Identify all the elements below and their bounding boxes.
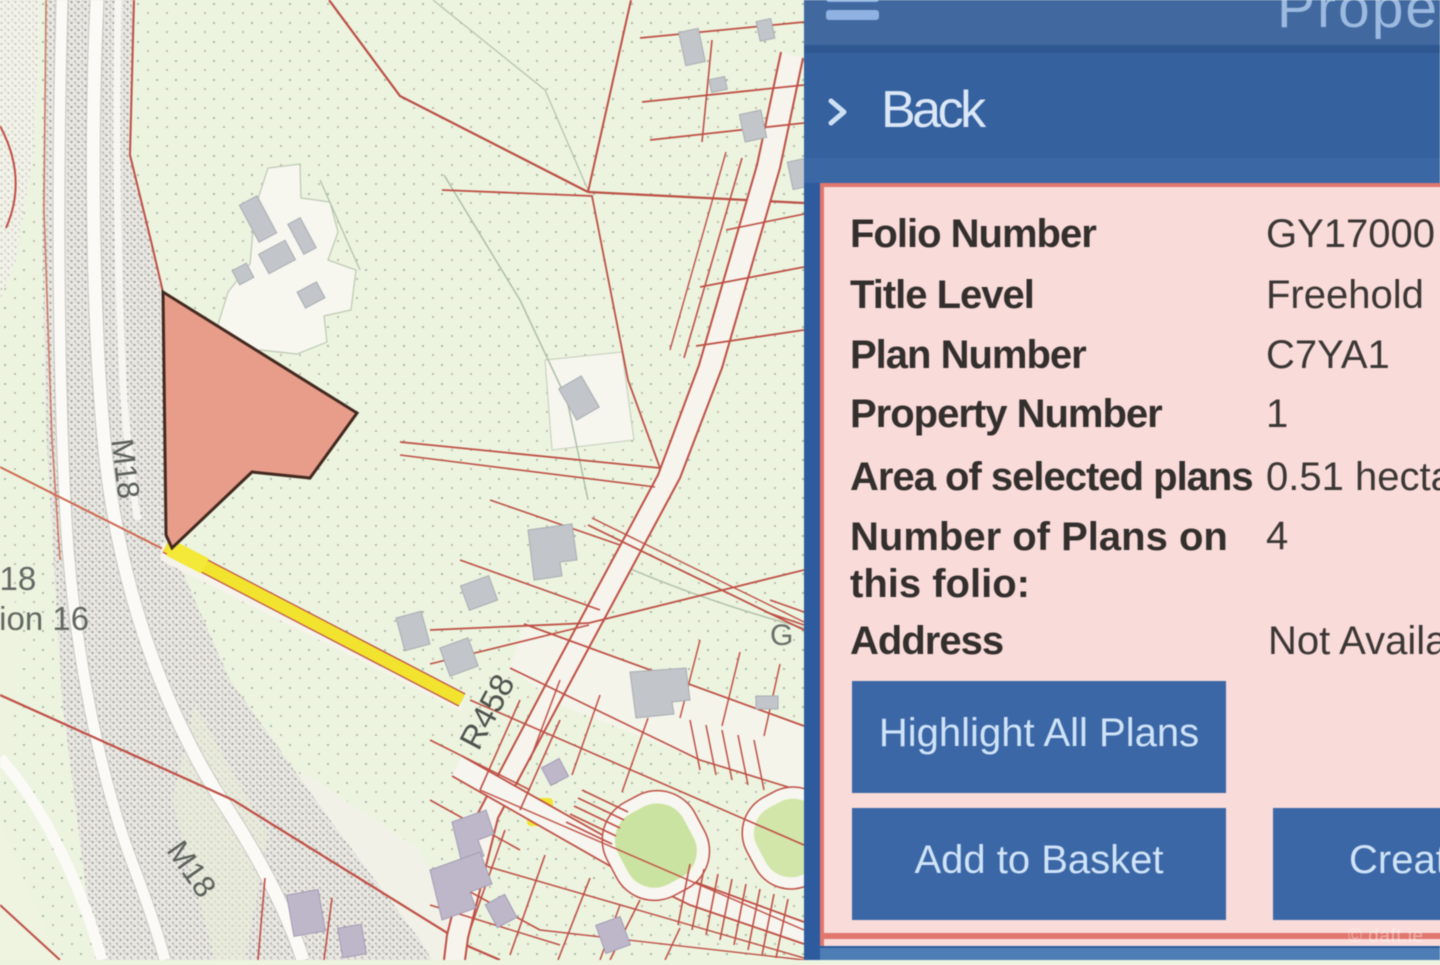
svg-text:tion 16: tion 16 (0, 600, 89, 637)
svg-text:M18: M18 (104, 437, 146, 501)
svg-text:G: G (770, 619, 793, 652)
svg-text:M18: M18 (0, 560, 36, 597)
